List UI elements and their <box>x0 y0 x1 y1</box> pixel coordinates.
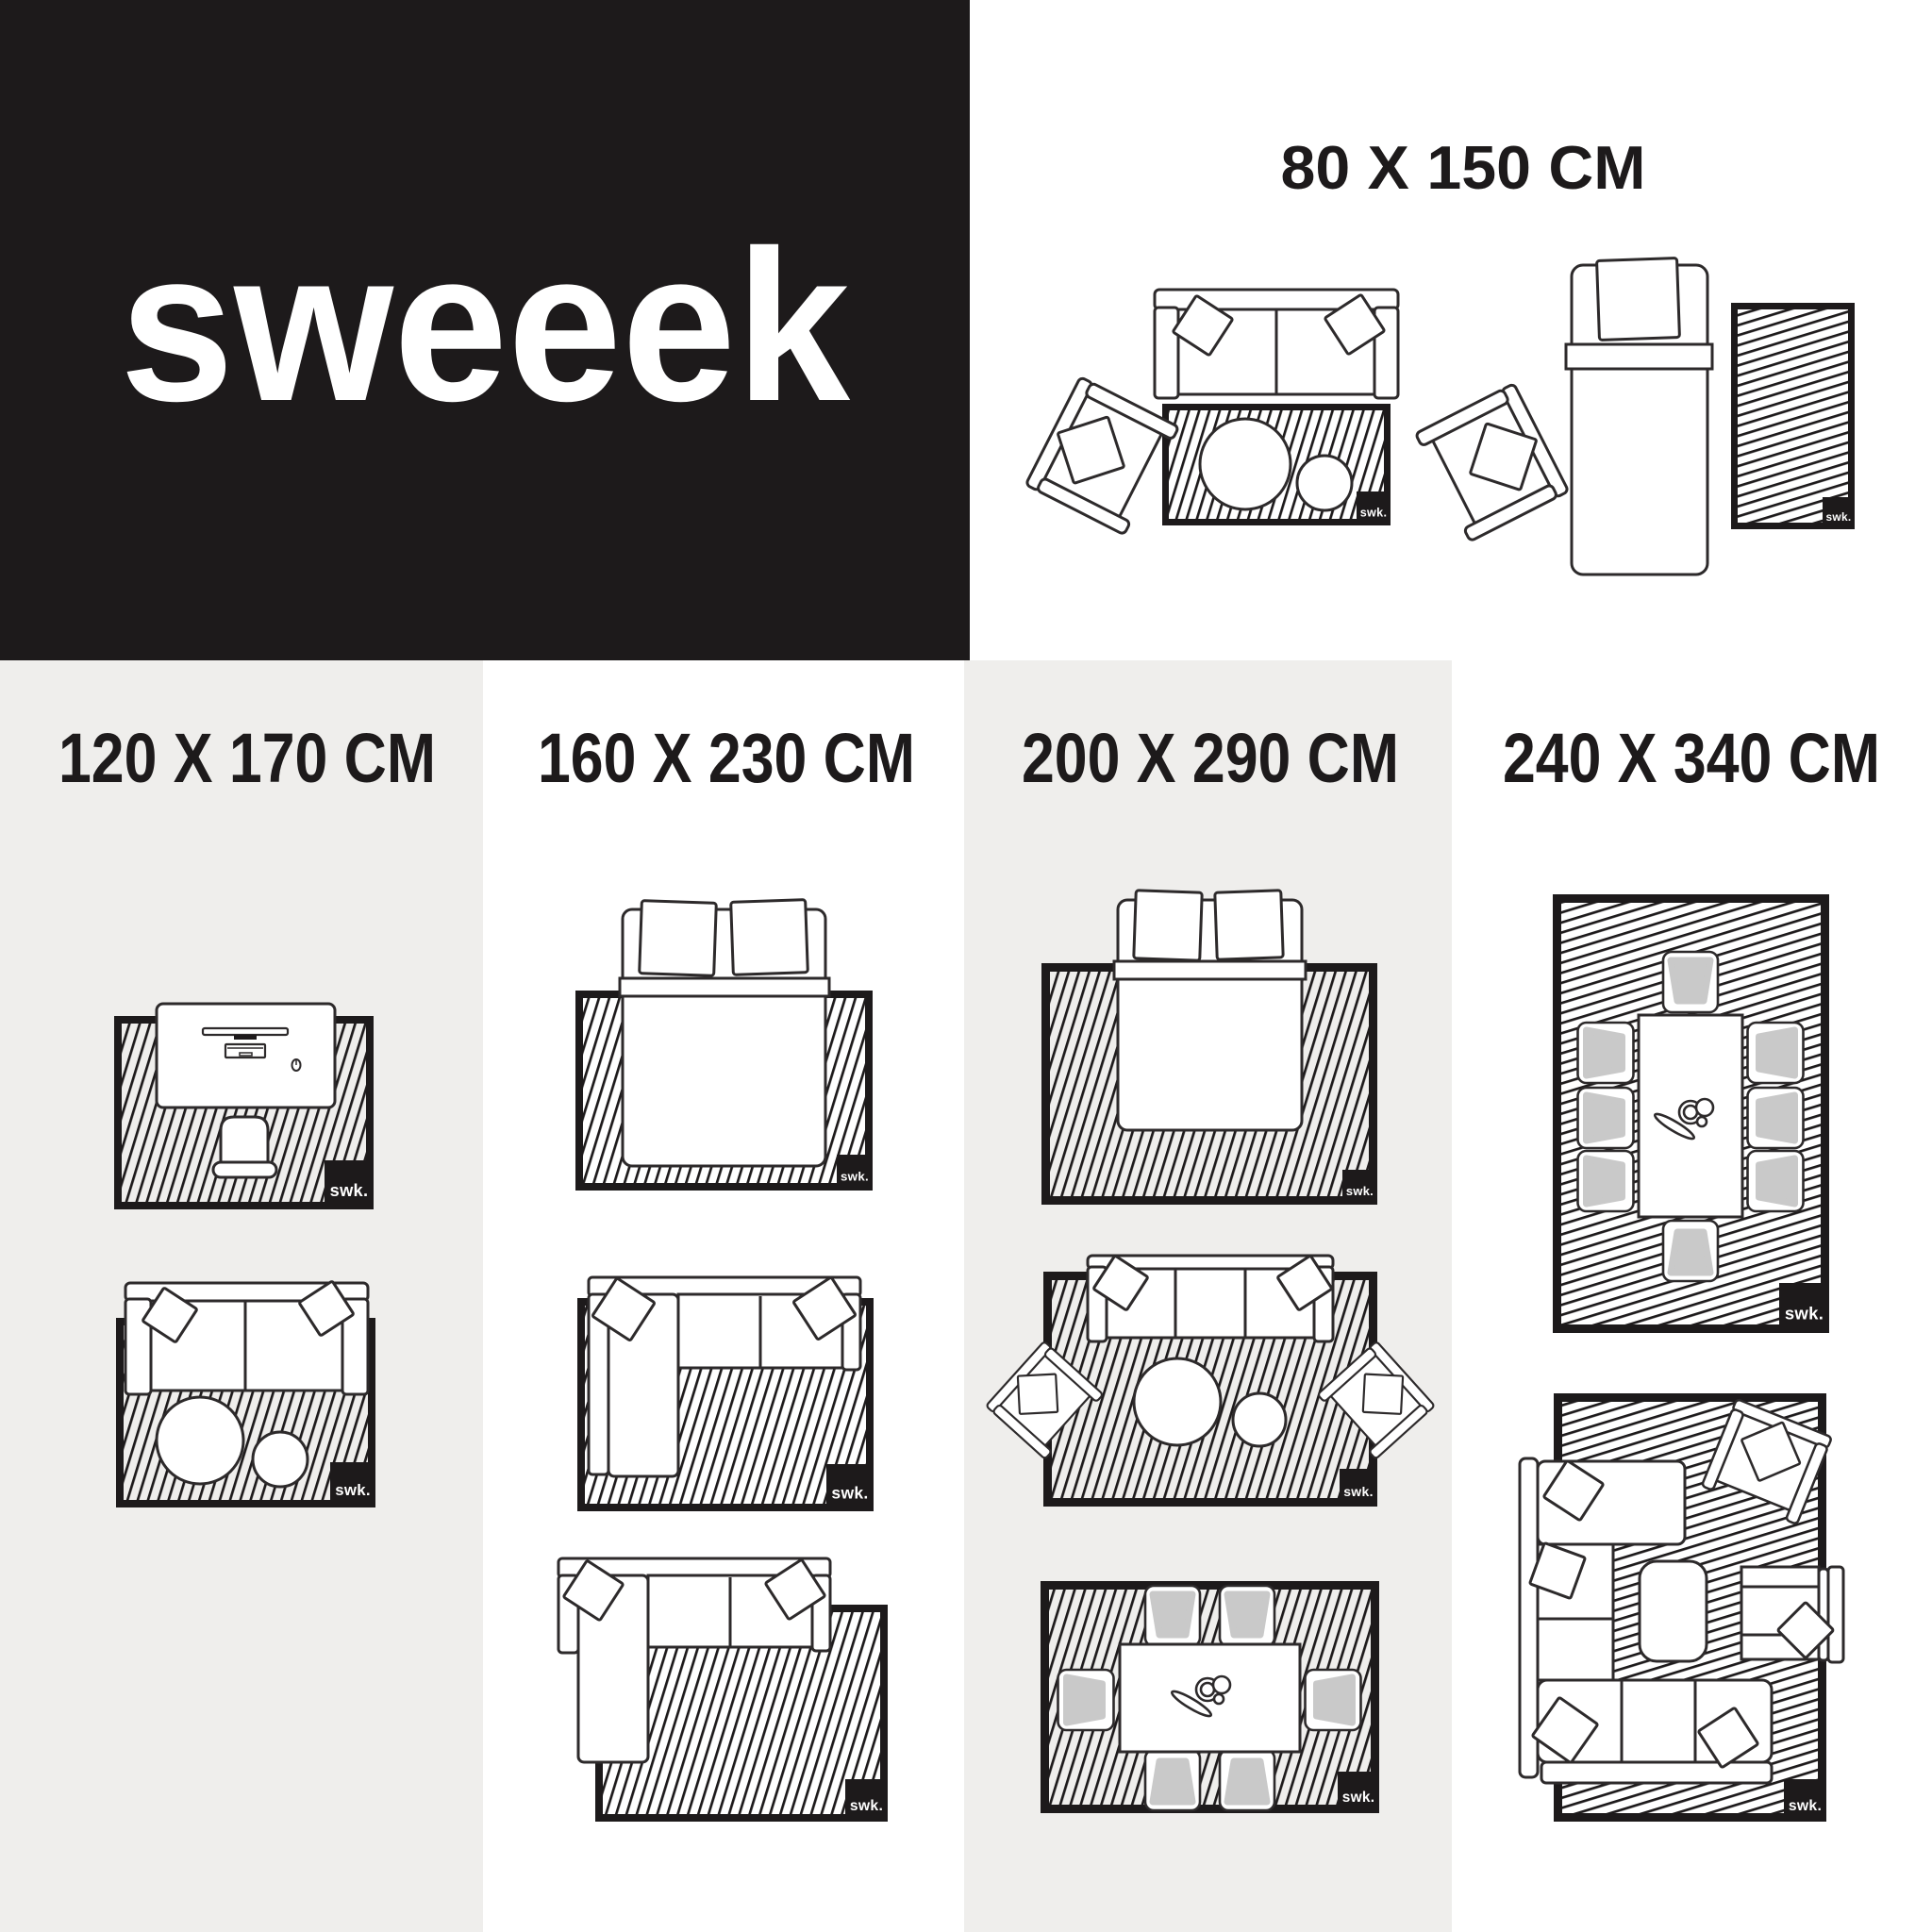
svg-text:swk.: swk. <box>850 1798 883 1814</box>
svg-text:240 X 340 CM: 240 X 340 CM <box>1503 719 1880 797</box>
svg-text:swk.: swk. <box>1342 1790 1375 1806</box>
svg-text:swk.: swk. <box>1346 1184 1374 1198</box>
svg-text:80 X 150 CM: 80 X 150 CM <box>1281 133 1646 202</box>
svg-text:swk.: swk. <box>330 1181 369 1200</box>
svg-text:swk.: swk. <box>1343 1484 1374 1499</box>
svg-text:200 X 290 CM: 200 X 290 CM <box>1022 719 1399 797</box>
svg-text:120 X 170 CM: 120 X 170 CM <box>58 719 436 797</box>
svg-text:swk.: swk. <box>831 1484 868 1503</box>
svg-text:swk.: swk. <box>1785 1304 1824 1324</box>
svg-text:swk.: swk. <box>1360 506 1388 519</box>
svg-text:swk.: swk. <box>1789 1798 1822 1814</box>
svg-text:swk.: swk. <box>335 1481 371 1499</box>
svg-text:sweeek: sweeek <box>120 207 851 446</box>
svg-text:160 X 230 CM: 160 X 230 CM <box>538 719 915 797</box>
svg-text:swk.: swk. <box>1826 510 1852 524</box>
svg-text:swk.: swk. <box>841 1170 869 1184</box>
